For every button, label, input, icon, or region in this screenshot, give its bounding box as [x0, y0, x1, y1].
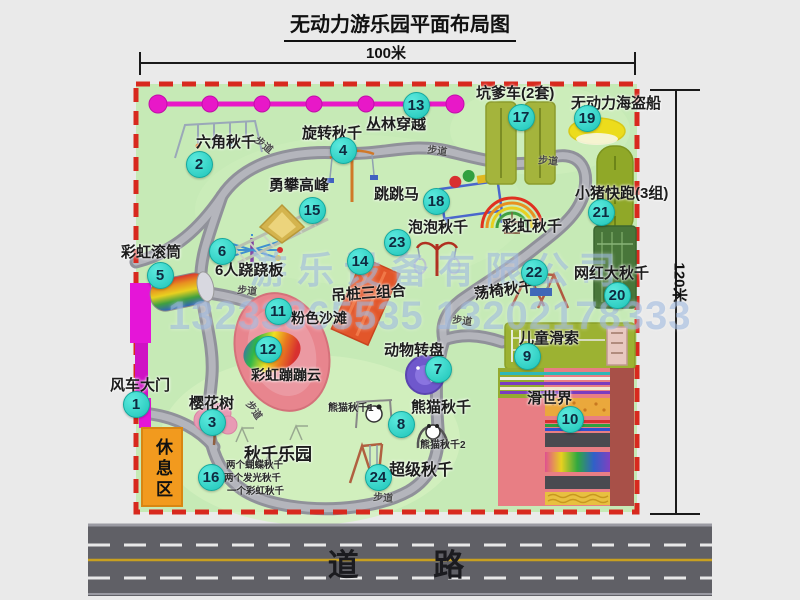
attraction-label-18: 跳跳马: [374, 187, 419, 202]
attraction-badge-11: 11: [265, 298, 292, 325]
attraction-label-15: 勇攀高峰: [269, 178, 329, 193]
attraction-badge-9: 9: [514, 343, 541, 370]
attraction-label-13: 丛林穿越: [366, 117, 426, 132]
attraction-badge-18: 18: [423, 188, 450, 215]
attraction-badge-21: 21: [588, 199, 615, 226]
footpath-label-6: 步道: [373, 493, 394, 505]
attraction-badge-16: 16: [198, 464, 225, 491]
attraction-label-23: 泡泡秋千: [408, 220, 468, 235]
attraction-label-24: 超级秋千: [389, 463, 453, 479]
attraction-badge-12: 12: [255, 336, 282, 363]
attraction-badge-6: 6: [209, 238, 236, 265]
attraction-badge-24: 24: [365, 464, 392, 491]
attraction-label-17: 坑爹车(2套): [476, 86, 554, 101]
attraction-badge-20: 20: [604, 282, 631, 309]
attraction-label-11: 粉色沙滩: [291, 311, 347, 325]
attraction-badge-3: 3: [199, 409, 226, 436]
attraction-label-rainbow-swing: 彩虹秋千: [502, 219, 562, 234]
attraction-badge-15: 15: [299, 197, 326, 224]
footpath-label-2: 步道: [538, 156, 559, 167]
attraction-label-8: 熊猫秋千: [411, 400, 471, 415]
sub-label-3: 两个发光秋千: [224, 474, 281, 484]
attraction-badge-17: 17: [508, 104, 535, 131]
attraction-badge-7: 7: [425, 356, 452, 383]
sub-label-0: 熊猫秋千1: [328, 404, 374, 414]
slide-world-icon: [498, 368, 634, 506]
attraction-label-10: 滑世界: [527, 391, 572, 406]
attraction-badge-4: 4: [330, 137, 357, 164]
rest-area-label: 休息区: [150, 438, 175, 501]
attraction-label-20: 网红大秋千: [574, 266, 649, 281]
attraction-badge-23: 23: [384, 229, 411, 256]
dimension-width-label: 100米: [366, 42, 406, 63]
attraction-badge-1: 1: [123, 391, 150, 418]
attraction-badge-14: 14: [347, 248, 374, 275]
footpath-label-3: 步道: [237, 286, 258, 298]
playground-plan: 无动力游乐园平面布局图 100米 120米 游乐设备有限公司 132338655…: [0, 0, 800, 600]
attraction-label-6: 6人跷跷板: [215, 263, 283, 278]
attraction-label-12: 彩虹蹦蹦云: [251, 368, 321, 382]
road-label: 道 路: [0, 540, 800, 585]
attraction-badge-19: 19: [574, 105, 601, 132]
sub-label-1: 熊猫秋千2: [420, 441, 466, 451]
watermark-company: 游乐设备有限公司: [250, 252, 626, 289]
attraction-label-21: 小猪快跑(3组): [575, 186, 668, 201]
attraction-badge-5: 5: [147, 262, 174, 289]
attraction-badge-2: 2: [186, 151, 213, 178]
sub-label-2: 两个蝴蝶秋千: [226, 461, 283, 471]
attraction-label-2: 六角秋千: [196, 135, 256, 150]
attraction-badge-10: 10: [557, 406, 584, 433]
attraction-label-5: 彩虹滚筒: [121, 245, 181, 260]
attraction-badge-8: 8: [388, 411, 415, 438]
attraction-badge-22: 22: [521, 259, 548, 286]
attraction-label-4: 旋转秋千: [302, 126, 362, 141]
sub-label-4: 一个彩虹秋千: [227, 487, 284, 497]
page-title: 无动力游乐园平面布局图: [284, 8, 516, 42]
attraction-badge-13: 13: [403, 92, 430, 119]
